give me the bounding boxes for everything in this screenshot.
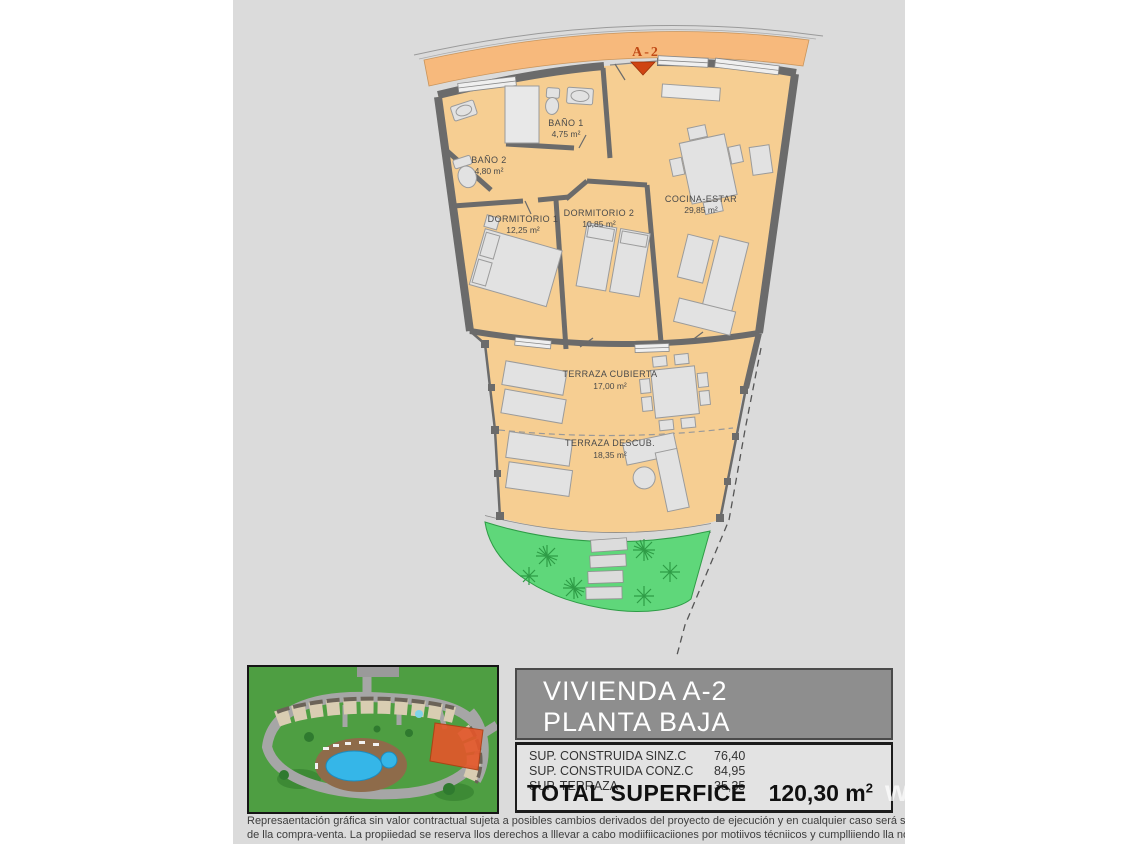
disclaimer-text: Represaentación gráfica sin valor contra… (247, 815, 905, 842)
total-label: TOTAL SUPERFICE (527, 780, 747, 807)
kitchen-cabinet (749, 145, 773, 176)
disclaimer-line1: Represaentación gráfica sin valor contra… (247, 815, 905, 829)
panel-body: SUP. CONSTRUIDA SINZ.C 76,40 SUP. CONSTR… (515, 742, 893, 813)
panel-title-line1: VIVIENDA A-2 (543, 676, 891, 707)
room-label-bano1: BAÑO 1 (548, 118, 583, 128)
surface-value: 76,40 (714, 749, 745, 764)
svg-text:4,75 m²: 4,75 m² (552, 129, 581, 139)
sink-icon (566, 87, 593, 105)
room-label-terraza-descub: TERRAZA DESCUB. (565, 438, 655, 448)
site-plan-graphic (249, 667, 497, 812)
unit-marker-label: A-2 (632, 45, 660, 60)
surface-value: 84,95 (714, 764, 745, 779)
panel-title-line2: PLANTA BAJA (543, 707, 891, 738)
highlighted-unit (430, 723, 483, 770)
info-panel: VIVIENDA A-2 PLANTA BAJA SUP. CONSTRUIDA… (515, 668, 893, 813)
apartment-floor (438, 62, 796, 534)
floor-plan: A-2 BAÑO 1 4,75 m² BAÑO 2 4,80 m² DORMIT… (233, 0, 905, 660)
surface-label: SUP. CONSTRUIDA CONZ.C (529, 764, 693, 779)
shower-bath1 (505, 86, 539, 143)
surface-row: SUP. CONSTRUIDA CONZ.C 84,95 (517, 764, 891, 779)
surface-label: SUP. CONSTRUIDA SINZ.C (529, 749, 686, 764)
svg-text:18,35 m²: 18,35 m² (593, 450, 627, 460)
svg-text:4,80 m²: 4,80 m² (475, 166, 504, 176)
svg-text:17,00 m²: 17,00 m² (593, 381, 627, 391)
page: A-2 BAÑO 1 4,75 m² BAÑO 2 4,80 m² DORMIT… (0, 0, 1140, 860)
room-label-terraza-cubierta: TERRAZA CUBIERTA (562, 369, 657, 379)
disclaimer-line2: de lla compra-venta. La propiiedad se re… (247, 829, 905, 843)
room-label-cocina: COCINA-ESTAR (665, 194, 737, 204)
svg-text:10,85 m²: 10,85 m² (582, 219, 616, 229)
plan-sheet: A-2 BAÑO 1 4,75 m² BAÑO 2 4,80 m² DORMIT… (233, 0, 905, 844)
svg-text:29,85 m²: 29,85 m² (684, 205, 718, 215)
roundabout (415, 710, 423, 718)
panel-header: VIVIENDA A-2 PLANTA BAJA (515, 668, 893, 740)
room-label-dormitorio2: DORMITORIO 2 (564, 208, 635, 218)
surface-row: SUP. CONSTRUIDA SINZ.C 76,40 (517, 749, 891, 764)
total-row: TOTAL SUPERFICE 120,30 m2 (517, 782, 891, 809)
svg-text:12,25 m²: 12,25 m² (506, 225, 540, 235)
room-label-bano2: BAÑO 2 (471, 155, 506, 165)
toilet-icon (545, 88, 560, 115)
total-value: 120,30 m2 (769, 780, 873, 807)
room-label-dormitorio1: DORMITORIO 1 (488, 214, 559, 224)
site-aerial-photo (247, 665, 499, 814)
